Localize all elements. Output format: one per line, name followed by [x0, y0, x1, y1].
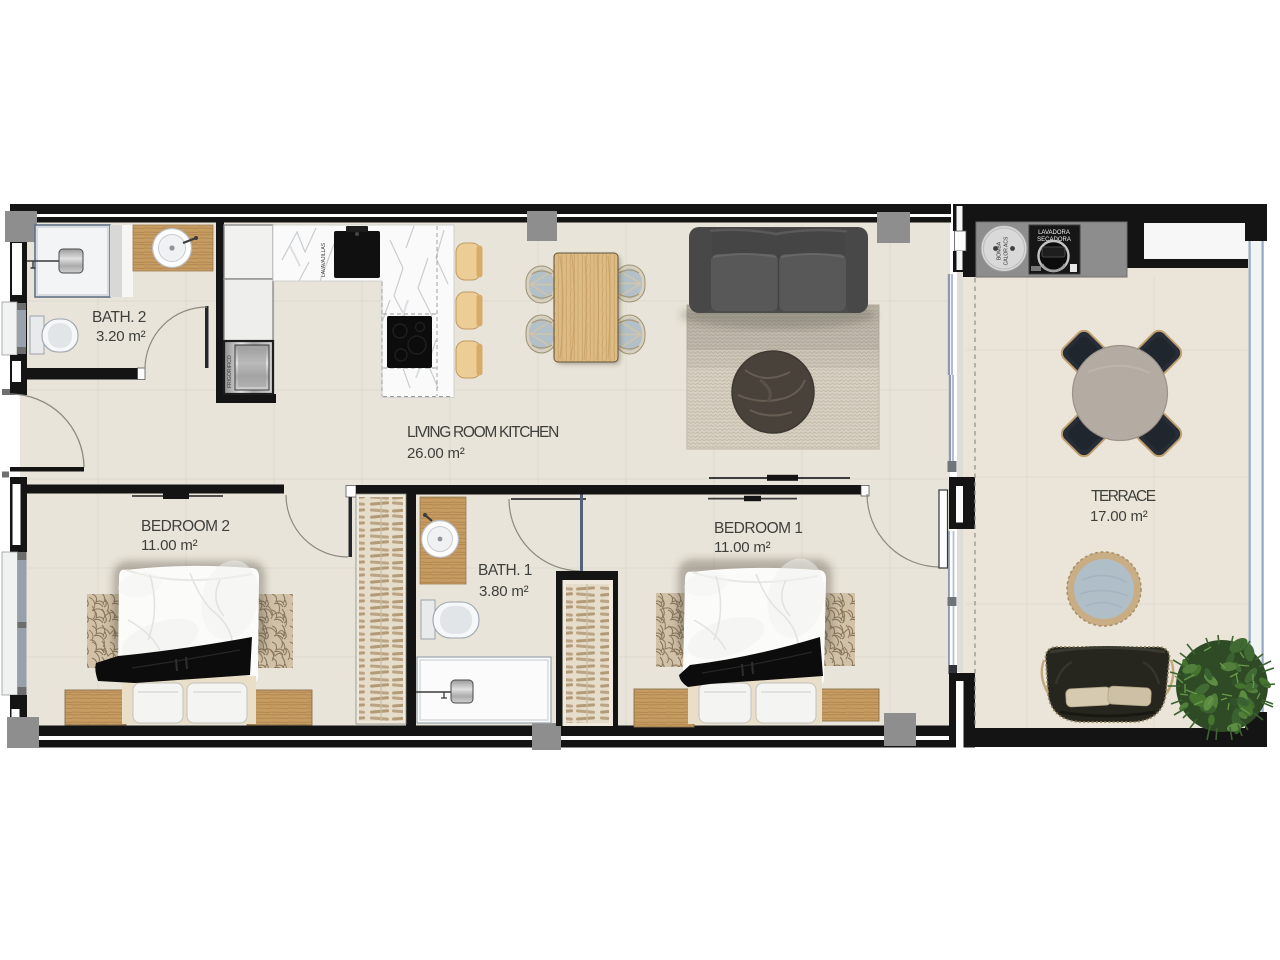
svg-text:11.00 m²: 11.00 m² [141, 537, 198, 554]
svg-text:TERRACE: TERRACE [1091, 488, 1156, 505]
svg-text:BEDROOM 2: BEDROOM 2 [141, 518, 230, 535]
svg-text:LAVADORA: LAVADORA [1038, 230, 1070, 236]
svg-text:CALOR ACS: CALOR ACS [1004, 236, 1010, 265]
svg-text:3.80 m²: 3.80 m² [479, 583, 529, 600]
svg-text:LAVAVAJILLAS: LAVAVAJILLAS [321, 242, 327, 277]
svg-text:BEDROOM 1: BEDROOM 1 [714, 520, 803, 537]
svg-text:BATH. 2: BATH. 2 [92, 309, 146, 326]
svg-text:LIVING ROOM KITCHEN: LIVING ROOM KITCHEN [407, 424, 558, 441]
svg-text:FRIGORIFICO: FRIGORIFICO [227, 355, 233, 388]
svg-text:17.00 m²: 17.00 m² [1090, 508, 1148, 525]
svg-text:BOMBA: BOMBA [997, 241, 1003, 260]
svg-text:BATH. 1: BATH. 1 [478, 562, 532, 579]
svg-text:26.00 m²: 26.00 m² [407, 445, 465, 462]
svg-text:3.20 m²: 3.20 m² [96, 328, 146, 345]
svg-text:11.00 m²: 11.00 m² [714, 539, 771, 556]
